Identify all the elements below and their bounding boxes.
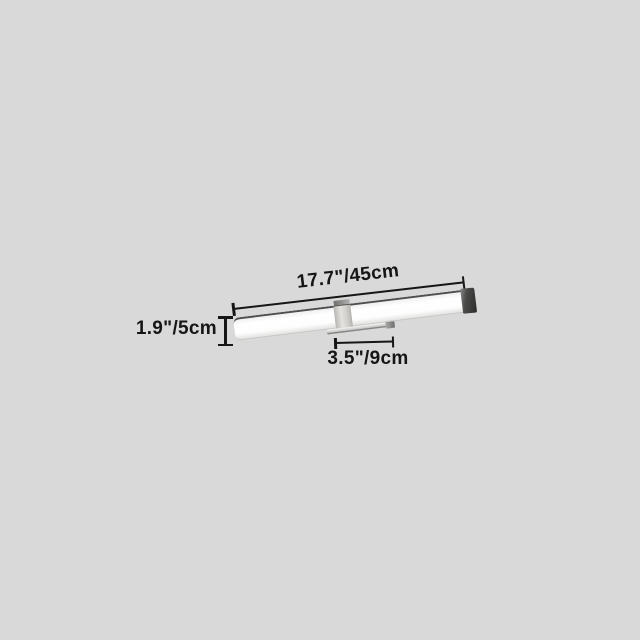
mount-clamp: [333, 305, 353, 329]
depth-dimension-right-tick: [391, 336, 394, 347]
height-dimension-top-serif: [218, 316, 233, 319]
depth-dimension-line: [335, 340, 393, 344]
height-dimension-marker: [224, 316, 227, 346]
depth-dimension-label: 3.5"/9cm: [317, 348, 419, 370]
product-dimension-diagram: 17.7"/45cm 1.9"/5cm 3.5"/9cm: [0, 0, 640, 640]
width-dimension-left-tick: [231, 303, 235, 316]
height-dimension-label: 1.9"/5cm: [116, 318, 217, 340]
light-bar-end-cap: [460, 288, 477, 314]
height-dimension-bottom-serif: [218, 344, 233, 347]
